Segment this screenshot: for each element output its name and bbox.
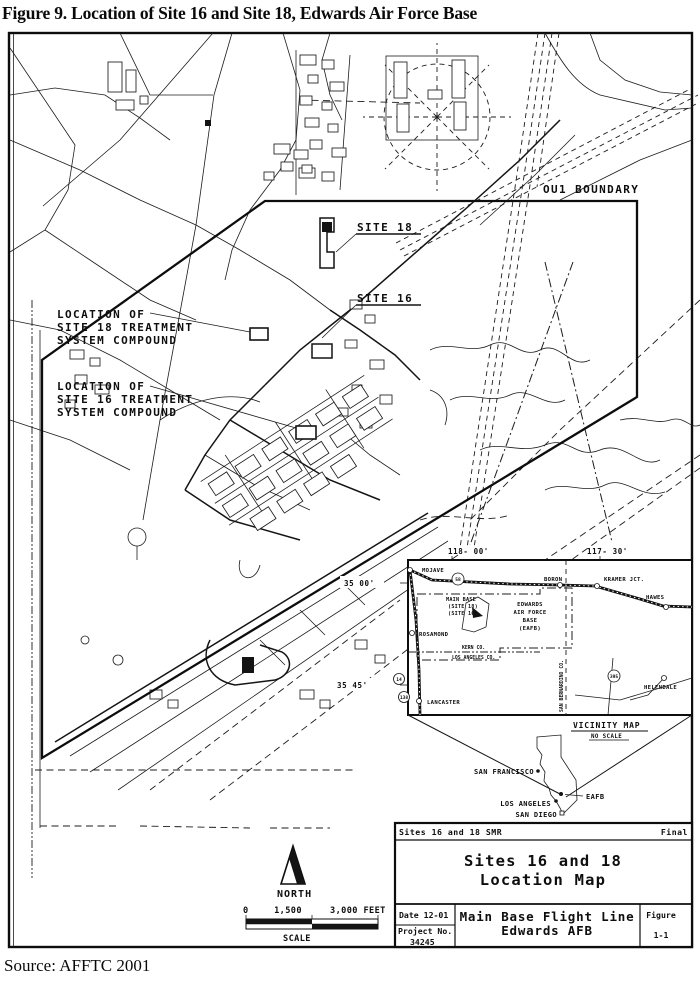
scale-bar: 0 1,500 3,000 FEET SCALE [243,906,386,944]
site16-treatment-label-line3: SYSTEM COMPOUND [57,406,177,419]
longitude-117-30-label: 117- 30' [587,547,628,556]
doc-title-left: Sites 16 and 18 SMR [399,827,502,837]
california-locator: SAN FRANCISCO EAFB LOS ANGELES SAN DIEGO [408,715,692,819]
eafb-label-line2: AIR FORCE [513,610,546,616]
site16-treatment-label-line2: SITE 16 TREATMENT [57,393,193,406]
subject-line2: Edwards AFB [501,923,593,938]
eafb-state-label: EAFB [586,793,604,801]
highway-138-shield: 138 [400,695,409,701]
los-angeles-label: LOS ANGELES [500,800,551,808]
scale-tick-0: 0 [243,906,249,916]
title-block: Sites 16 and 18 SMR Final Sites 16 and 1… [395,823,692,947]
eafb-label-line3: BASE [523,618,538,624]
site16-compound-outline [250,328,332,439]
san-diego-label: SAN DIEGO [515,811,557,819]
site18-treatment-label-line2: SITE 18 TREATMENT [57,321,193,334]
date-cell: Date 12-01 [399,910,448,920]
source-citation: Source: AFFTC 2001 [0,950,700,976]
mojave-label: MOJAVE [422,568,444,574]
eafb-label-line1: EDWARDS [517,602,543,608]
scale-tick-3000: 3,000 FEET [330,906,386,916]
sheet-title-line2: Location Map [480,871,606,889]
site-location-map: OU1 BOUNDARY SITE 18 SITE 16 LOCATION OF… [0,30,700,950]
rosamond-label: ROSAMOND [419,632,449,638]
san-bernardino-county-label: SAN BERNARDINO CO. [559,660,565,712]
scale-label: SCALE [283,934,311,944]
doc-status: Final [661,827,688,837]
main-base-label-line3: (SITE 16) [448,611,478,617]
latitude-35-00-label: 35 00' [344,579,375,588]
hawes-label: HAWES [646,595,665,601]
runway-markings [396,33,698,548]
boron-label: BORON [544,577,563,583]
road-network [10,33,700,878]
latitude-35-45-label: 35 45' [337,681,368,690]
subject-line1: Main Base Flight Line [460,909,635,924]
figure-caption: Figure 9. Location of Site 16 and Site 1… [0,0,700,30]
map-border [9,33,692,947]
main-base-label-line1: MAIN BASE [446,597,476,603]
los-angeles-county-label: LOS ANGELES CO. [452,655,495,661]
longitude-118-label: 118- 00' [448,547,489,556]
lancaster-label: LANCASTER [427,700,460,706]
north-label: NORTH [277,889,312,900]
project-number: 34245 [410,937,435,947]
site16-treatment-label-line1: LOCATION OF [57,380,145,393]
site16-label: SITE 16 [357,292,413,305]
site18-treatment-label-line1: LOCATION OF [57,308,145,321]
no-scale-caption: NO SCALE [591,734,622,740]
main-base-label-line2: (SITE 18) [448,604,478,610]
ou1-boundary-label: OU1 BOUNDARY [543,183,639,196]
sheet-title-line1: Sites 16 and 18 [464,852,622,870]
site18-compound-outline [320,218,334,268]
kern-county-label: KERN CO. [462,645,485,651]
san-francisco-label: SAN FRANCISCO [474,768,534,776]
vicinity-inset: 118- 00' 117- 30' 35 00' 35 45' [333,547,692,740]
eafb-label-line4: (EAFB) [519,626,541,632]
north-arrow: NORTH [277,846,312,900]
site18-label: SITE 18 [357,221,413,234]
vicinity-map-caption: VICINITY MAP [573,721,640,730]
figure-label: Figure [646,910,676,920]
project-label: Project No. [398,926,452,936]
helendale-label: HELENDALE [644,685,677,691]
figure-number: 1-1 [654,930,669,940]
highway-58-shield: 58 [455,577,461,583]
scale-tick-1500: 1,500 [274,906,302,916]
map-annotations: OU1 BOUNDARY SITE 18 SITE 16 LOCATION OF… [57,183,639,428]
kramer-jct-label: KRAMER JCT. [604,577,644,583]
highway-395-shield: 395 [610,674,619,680]
highway-14-shield: 14 [396,677,402,683]
compass-rose [363,43,511,191]
site18-treatment-label-line3: SYSTEM COMPOUND [57,334,177,347]
